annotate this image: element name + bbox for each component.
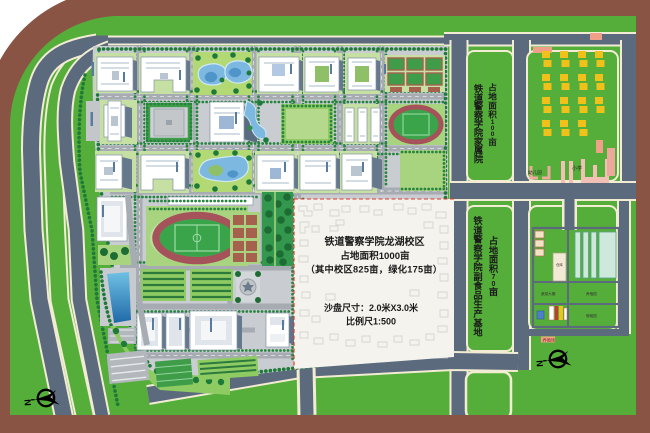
- svg-text:N: N: [534, 360, 544, 367]
- svg-text:铁道警察学院家属院: 铁道警察学院家属院: [474, 83, 484, 164]
- svg-text:幼儿园: 幼儿园: [528, 169, 542, 176]
- svg-text:铁道警察学院龙湖校区: 铁道警察学院龙湖校区: [325, 235, 425, 248]
- svg-text:沙盘尺寸：2.0米X3.0米: 沙盘尺寸：2.0米X3.0米: [324, 302, 419, 313]
- svg-text:蔬菜大棚: 蔬菜大棚: [541, 291, 556, 296]
- svg-text:（其中校区825亩，绿化175亩）: （其中校区825亩，绿化175亩）: [306, 264, 443, 275]
- svg-text:葡萄园: 葡萄园: [586, 313, 597, 318]
- svg-text:占地面积1000亩: 占地面积1000亩: [340, 250, 410, 262]
- svg-text:铁道警察学院副食品生产基地: 铁道警察学院副食品生产基地: [472, 215, 483, 338]
- svg-text:养殖场: 养殖场: [543, 337, 556, 344]
- svg-text:小学: 小学: [572, 165, 582, 172]
- svg-text:比例尺1:500: 比例尺1:500: [346, 316, 396, 327]
- svg-text:养殖园: 养殖园: [586, 291, 597, 296]
- svg-text:占地面积100亩: 占地面积100亩: [488, 82, 497, 148]
- svg-text:N: N: [22, 399, 32, 406]
- svg-text:占地面积70亩: 占地面积70亩: [488, 235, 499, 297]
- svg-text:仓库: 仓库: [556, 262, 563, 267]
